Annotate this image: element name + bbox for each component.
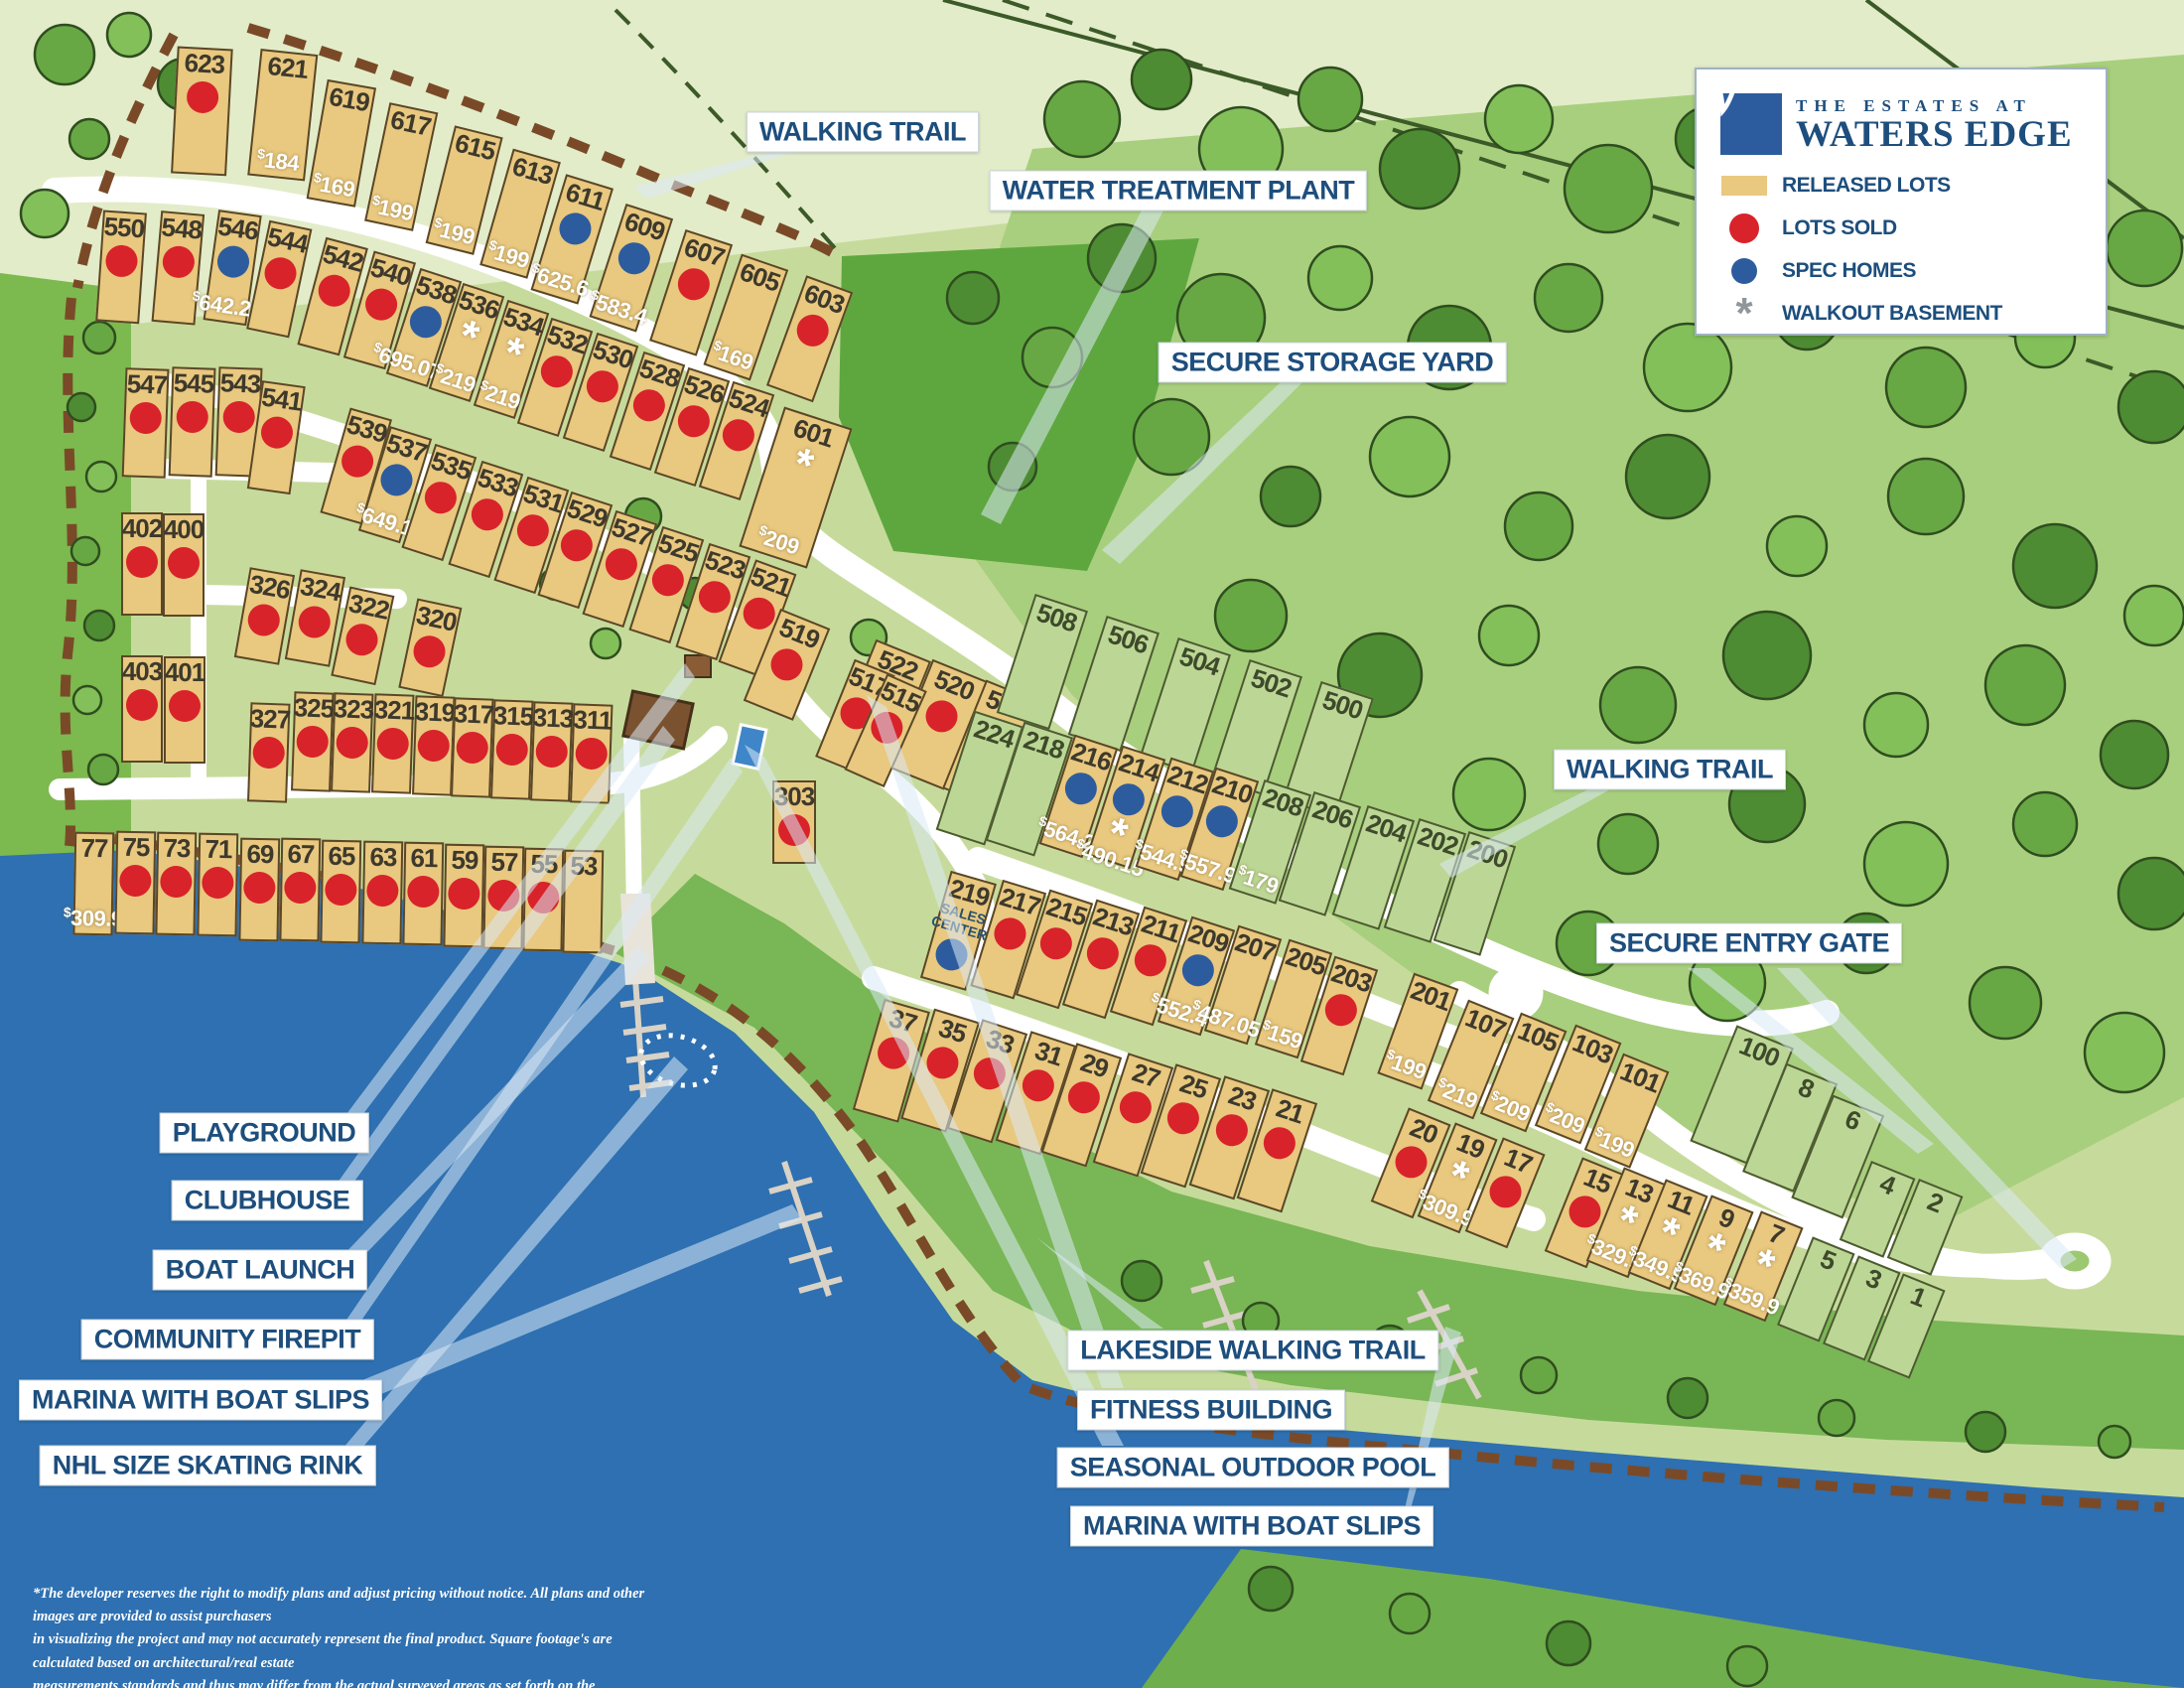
lot-313[interactable]: 313 — [530, 701, 573, 801]
sold-dot — [162, 245, 197, 280]
lot-number: 523 — [702, 546, 748, 583]
walkout-asterisk-icon: * — [1735, 301, 1752, 327]
sold-dot — [376, 727, 409, 760]
sold-dot — [1083, 933, 1123, 973]
lot-number: 23 — [1226, 1081, 1260, 1114]
lot-number: 21 — [1274, 1094, 1307, 1127]
sold-dot — [168, 547, 200, 579]
sold-dot — [259, 415, 295, 451]
waters-edge-logo-icon — [1720, 93, 1782, 155]
sold-dot — [315, 271, 353, 310]
lot-number: 538 — [413, 271, 459, 308]
sold-dot — [169, 690, 201, 722]
lot-number: 25 — [1177, 1069, 1211, 1102]
lot-number: 532 — [544, 321, 590, 357]
lot-73[interactable]: 73 — [155, 832, 197, 936]
lot-price: $209 — [1485, 1086, 1535, 1127]
sold-dot — [970, 1054, 1010, 1093]
lot-number: 621 — [266, 53, 309, 82]
callout-clubhouse: CLUBHOUSE — [172, 1181, 363, 1221]
lot-number: 530 — [590, 336, 635, 372]
lot-price: $159 — [1258, 1016, 1306, 1055]
lot-number: 521 — [748, 563, 794, 601]
lot-number: 525 — [655, 529, 701, 566]
spec-dot — [215, 244, 251, 280]
lot-619[interactable]: 619$169 — [307, 79, 376, 208]
lot-price: $625.6 — [527, 259, 592, 303]
sold-dot — [922, 1043, 962, 1082]
lot-number: 313 — [532, 704, 573, 731]
sold-dot — [874, 1034, 913, 1073]
sold-dot — [1163, 1098, 1203, 1138]
lot-number: 519 — [776, 614, 823, 652]
spec-dot — [406, 302, 446, 342]
lot-number: 324 — [298, 573, 341, 606]
lot-number: 303 — [774, 783, 814, 809]
lot-69[interactable]: 69 — [238, 838, 280, 942]
sold-dot — [527, 882, 560, 914]
legend-label: WALKOUT BASEMENT — [1782, 302, 2002, 326]
lot-number: 609 — [621, 208, 667, 244]
released-lot-swatch — [1721, 176, 1767, 196]
lot-number: 207 — [1232, 928, 1278, 965]
lot-number: 69 — [246, 841, 273, 867]
lot-321[interactable]: 321 — [371, 693, 414, 793]
sold-dot — [407, 876, 440, 909]
lot-price: $169 — [311, 169, 357, 203]
lot-number: 77 — [80, 835, 107, 861]
lot-price: $219 — [476, 376, 524, 415]
lot-number: 200 — [1464, 835, 1510, 872]
site-plan-map: 623621$184619$169617$199615$199613$19961… — [0, 0, 2184, 1688]
lot-number: 57 — [490, 849, 517, 875]
lot-317[interactable]: 317 — [451, 697, 493, 797]
lot-67[interactable]: 67 — [279, 838, 321, 942]
lot-303[interactable]: 303 — [772, 780, 816, 864]
sold-dot — [222, 400, 255, 433]
lot-number: 520 — [931, 665, 978, 704]
lot-number: 107 — [1462, 1004, 1509, 1043]
sold-dot — [1321, 990, 1361, 1030]
lot-number: 105 — [1515, 1017, 1562, 1055]
brand-line1: THE ESTATES AT — [1796, 96, 2073, 116]
legend-item-2: SPEC HOMES — [1720, 256, 2106, 286]
lot-550[interactable]: 550 — [95, 210, 147, 324]
lot-number: 61 — [410, 845, 437, 871]
lot-price: $199 — [430, 213, 478, 250]
spec-dot — [932, 935, 972, 975]
lot-number: 2 — [1924, 1188, 1946, 1216]
lot-number: 617 — [388, 106, 433, 140]
sold-dot — [284, 872, 317, 905]
callout-seasonal-outdoor-pool: SEASONAL OUTDOOR POOL — [1057, 1448, 1449, 1488]
walkout-asterisk-icon: * — [457, 322, 481, 352]
sold-dot — [421, 478, 461, 517]
lot-506[interactable]: 506 — [1068, 616, 1160, 752]
sold-dot — [202, 867, 234, 900]
lot-number: 613 — [509, 153, 555, 189]
lot-number: 320 — [414, 602, 459, 635]
sold-dot — [336, 726, 368, 759]
walkout-asterisk-icon: * — [1656, 1218, 1682, 1248]
lot-number: 529 — [564, 494, 610, 531]
callout-fitness-building: FITNESS BUILDING — [1077, 1390, 1345, 1431]
sold-dot — [417, 729, 450, 762]
lot-617[interactable]: 617$199 — [364, 102, 438, 231]
legend-item-0: RELEASED LOTS — [1720, 171, 2106, 201]
sold-dot — [262, 254, 300, 292]
lot-number: 539 — [343, 411, 389, 447]
sold-dot — [296, 604, 333, 640]
callout-secure-entry-gate: SECURE ENTRY GATE — [1596, 923, 1902, 964]
sold-dot — [456, 731, 488, 764]
sold-dot — [719, 415, 758, 455]
lot-number: 401 — [165, 659, 205, 685]
sold-dot — [557, 525, 597, 565]
lot-number: 623 — [184, 50, 225, 77]
lot-number: 508 — [1033, 599, 1079, 635]
lot-402[interactable]: 402 — [121, 512, 163, 616]
legend-label: SPEC HOMES — [1782, 259, 1916, 283]
sold-dot — [674, 264, 714, 304]
sold-dot — [343, 621, 381, 658]
lot-price: $184 — [255, 145, 300, 177]
sold-dot — [487, 880, 520, 913]
lot-number: 542 — [321, 240, 366, 276]
lot-401[interactable]: 401 — [164, 656, 205, 764]
sold-dot — [1131, 940, 1170, 980]
sold-dot — [119, 865, 152, 898]
sold-dot — [583, 366, 622, 406]
lot-price: $199 — [369, 192, 416, 227]
brand-row: THE ESTATES AT WATERS EDGE — [1720, 93, 2106, 155]
lot-number: 101 — [1617, 1057, 1664, 1096]
lot-55[interactable]: 55 — [522, 848, 564, 952]
lot-number: 103 — [1570, 1029, 1616, 1067]
lot-323[interactable]: 323 — [331, 692, 373, 792]
sold-dot — [1116, 1087, 1156, 1127]
lot-403[interactable]: 403 — [121, 655, 163, 763]
lot-number: 53 — [570, 853, 597, 879]
sold-dot — [468, 494, 507, 534]
sold-dot — [648, 560, 688, 600]
callout-nhl-size-skating-rink: NHL SIZE SKATING RINK — [40, 1446, 376, 1486]
sold-dot — [366, 875, 399, 908]
lot-number: 524 — [726, 384, 771, 421]
lot-315[interactable]: 315 — [490, 699, 533, 799]
lot-number: 326 — [247, 571, 291, 604]
lot-price: $583.4 — [586, 286, 650, 330]
lot-number: 311 — [573, 706, 613, 733]
callout-marina-with-boat-slips-1: MARINA WITH BOAT SLIPS — [19, 1380, 382, 1421]
lot-price: $179 — [1233, 861, 1282, 900]
lot-545[interactable]: 545 — [169, 366, 216, 477]
callout-secure-storage-yard: SECURE STORAGE YARD — [1159, 343, 1507, 383]
lot-number: 215 — [1043, 893, 1089, 929]
lot-number: 619 — [327, 83, 370, 116]
lot-75[interactable]: 75 — [114, 831, 156, 935]
lot-number: 59 — [451, 847, 478, 873]
sold-dot — [252, 736, 285, 769]
lot-number: 73 — [163, 835, 190, 861]
spec-dot — [376, 460, 416, 499]
lot-number: 17 — [1501, 1144, 1536, 1178]
walkout-asterisk-icon: * — [791, 450, 816, 480]
lot-number: 611 — [563, 179, 608, 214]
lot-number: 607 — [681, 233, 727, 270]
sold-dot — [1260, 1123, 1299, 1163]
sold-dot — [1036, 923, 1076, 963]
sold-dot — [186, 80, 219, 114]
disclaimer-line: measurements standards and thus may diff… — [33, 1675, 648, 1688]
lot-number: 20 — [1407, 1114, 1441, 1148]
lot-number: 400 — [164, 516, 204, 542]
lot-number: 531 — [520, 480, 566, 516]
spec-dot — [1202, 801, 1242, 841]
walkout-asterisk-icon: * — [501, 339, 526, 368]
lot-number: 3 — [1862, 1264, 1884, 1293]
lot-504[interactable]: 504 — [1140, 637, 1231, 774]
lot-price: $199 — [484, 236, 532, 274]
lot-number: 504 — [1176, 642, 1222, 679]
legend-items: RELEASED LOTSLOTS SOLDSPEC HOMES*WALKOUT… — [1697, 171, 2106, 329]
sold-dot — [361, 285, 401, 325]
sold-dot — [126, 689, 158, 721]
lot-77[interactable]: 77$309.9 — [72, 832, 114, 936]
sold-dot — [990, 914, 1029, 953]
lot-number: 327 — [249, 705, 290, 732]
lot-number: 1 — [1907, 1282, 1929, 1311]
disclaimer-line: in visualizing the project and may not a… — [33, 1628, 648, 1674]
sold-dot — [245, 602, 282, 638]
lot-508[interactable]: 508 — [997, 594, 1088, 730]
lot-number: 615 — [453, 129, 497, 164]
sold-dot — [129, 401, 162, 434]
callout-community-firepit: COMMUNITY FIREPIT — [81, 1320, 374, 1360]
lot-number: 100 — [1736, 1032, 1783, 1070]
lot-number: 29 — [1078, 1049, 1112, 1081]
walkout-asterisk-icon: * — [1702, 1234, 1727, 1264]
lot-price: $169 — [708, 337, 756, 376]
spec-dot — [1158, 791, 1197, 831]
sold-dot — [629, 385, 669, 425]
callout-walking-trail-top: WALKING TRAIL — [747, 112, 979, 153]
lot-price: $219 — [1433, 1073, 1482, 1114]
lot-number: 403 — [122, 658, 162, 684]
spec-dot-icon — [1731, 258, 1757, 284]
lot-number: 65 — [328, 843, 354, 869]
lot-320[interactable]: 320 — [398, 599, 462, 698]
legend-swatch — [1720, 213, 1768, 243]
callout-marina-with-boat-slips-2: MARINA WITH BOAT SLIPS — [1070, 1506, 1433, 1547]
lot-number: 31 — [1032, 1037, 1066, 1069]
lot-number: 211 — [1139, 911, 1183, 947]
sold-dot — [325, 874, 357, 907]
sold-dot — [674, 401, 714, 441]
legend-swatch — [1720, 258, 1768, 284]
lot-number: 27 — [1130, 1058, 1163, 1091]
legend-panel: THE ESTATES AT WATERS EDGE RELEASED LOTS… — [1695, 68, 2108, 336]
brand-line2: WATERS EDGE — [1796, 116, 2073, 153]
lot-number: 535 — [428, 447, 474, 484]
spec-dot — [1178, 950, 1218, 990]
lot-number: 15 — [1580, 1164, 1615, 1197]
lot-65[interactable]: 65 — [320, 840, 361, 944]
legend-label: LOTS SOLD — [1782, 216, 1897, 240]
lot-number: 202 — [1415, 822, 1460, 859]
lot-number: 526 — [681, 370, 727, 407]
legend-item-3: *WALKOUT BASEMENT — [1720, 299, 2106, 329]
lot-number: 544 — [265, 223, 310, 257]
lot-number: 545 — [173, 369, 213, 396]
walkout-asterisk-icon: * — [1445, 1162, 1471, 1192]
callout-boat-launch: BOAT LAUNCH — [153, 1250, 367, 1291]
sold-dot — [1212, 1110, 1252, 1150]
lot-400[interactable]: 400 — [163, 513, 205, 617]
lot-71[interactable]: 71 — [197, 833, 238, 937]
sold-dot — [448, 878, 480, 911]
sold-dot — [160, 866, 193, 899]
callout-walking-trail-right: WALKING TRAIL — [1554, 750, 1786, 790]
lot-number: 323 — [333, 695, 373, 722]
lot-57[interactable]: 57 — [482, 846, 524, 950]
lot-number: 540 — [367, 254, 413, 290]
lot-number: 205 — [1283, 942, 1328, 979]
lot-number: 37 — [887, 1005, 919, 1037]
spec-dot — [614, 238, 654, 278]
lot-number: 212 — [1164, 761, 1210, 797]
lot-number: 71 — [205, 836, 231, 862]
lot-number: 537 — [383, 430, 429, 467]
lot-price: $199 — [1589, 1122, 1639, 1163]
lot-59[interactable]: 59 — [443, 844, 484, 948]
sold-dot — [495, 733, 528, 766]
lot-53[interactable]: 53 — [562, 850, 604, 954]
lot-number: 67 — [287, 841, 314, 867]
sold-dot — [338, 442, 377, 482]
lot-price: $209 — [1540, 1098, 1589, 1139]
lot-number: 527 — [609, 513, 654, 550]
lot-number: 322 — [346, 590, 391, 624]
lot-price: $219 — [431, 359, 479, 398]
callout-water-treatment-plant: WATER TREATMENT PLANT — [990, 171, 1367, 211]
brand-text: THE ESTATES AT WATERS EDGE — [1796, 96, 2073, 153]
lot-number: 546 — [216, 212, 260, 243]
lot-325[interactable]: 325 — [291, 691, 334, 791]
lot-number: 528 — [636, 354, 682, 391]
lot-price: $209 — [754, 521, 803, 560]
lot-327[interactable]: 327 — [247, 702, 290, 802]
lot-number: 75 — [122, 834, 149, 860]
lot-number: 203 — [1328, 959, 1374, 996]
lot-number: 5 — [1817, 1245, 1839, 1274]
disclaimer-line: *The developer reserves the right to mod… — [33, 1583, 648, 1628]
lot-number: 217 — [997, 884, 1042, 920]
lot-61[interactable]: 61 — [402, 842, 444, 946]
sold-dot — [1019, 1065, 1058, 1105]
lot-number: 502 — [1248, 664, 1294, 701]
lot-number: 548 — [161, 213, 204, 242]
sold-dot — [296, 725, 329, 758]
spec-dot — [555, 209, 595, 248]
sold-dot — [537, 352, 577, 391]
lot-number: 209 — [1185, 919, 1231, 956]
lot-547[interactable]: 547 — [122, 367, 170, 478]
lot-number: 6 — [1842, 1105, 1863, 1134]
lot-number: 603 — [801, 280, 848, 318]
lot-number: 213 — [1090, 903, 1136, 939]
lot-number: 8 — [1795, 1073, 1817, 1102]
lot-number: 500 — [1319, 686, 1365, 723]
sold-dot — [104, 244, 138, 278]
walkout-asterisk-icon: * — [1751, 1250, 1777, 1280]
lot-number: 204 — [1363, 809, 1409, 846]
sold-dot-icon — [1729, 213, 1759, 243]
lot-number: 319 — [414, 698, 455, 725]
sold-dot — [535, 735, 568, 768]
lot-63[interactable]: 63 — [361, 841, 403, 945]
sold-dot — [411, 633, 449, 670]
lot-number: 55 — [530, 851, 557, 877]
legend-item-1: LOTS SOLD — [1720, 213, 2106, 243]
disclaimer-text: *The developer reserves the right to mod… — [33, 1583, 648, 1688]
walkout-asterisk-icon: * — [1614, 1206, 1640, 1236]
lot-319[interactable]: 319 — [412, 695, 455, 795]
sold-dot — [778, 814, 810, 846]
lot-number: 550 — [103, 213, 145, 242]
sold-dot — [243, 872, 276, 905]
lot-price: $199 — [1381, 1046, 1430, 1085]
lot-number: 317 — [453, 700, 493, 727]
lot-number: 547 — [126, 370, 167, 397]
lot-number: 605 — [737, 258, 783, 296]
spec-dot — [1061, 769, 1101, 808]
legend-swatch — [1720, 176, 1768, 196]
lot-number: 4 — [1876, 1170, 1898, 1198]
callout-playground: PLAYGROUND — [160, 1113, 369, 1154]
legend-swatch: * — [1720, 301, 1768, 327]
lot-number: 533 — [475, 464, 520, 500]
lot-number: 325 — [293, 694, 334, 721]
lot-number: 35 — [936, 1015, 969, 1048]
sold-dot — [602, 544, 641, 584]
lot-number: 402 — [122, 515, 162, 541]
lot-number: 206 — [1309, 795, 1355, 832]
lot-623[interactable]: 623 — [171, 47, 233, 177]
lot-number: 543 — [219, 369, 260, 396]
lot-number: 321 — [373, 696, 414, 723]
lot-number: 506 — [1105, 621, 1151, 657]
lot-number: 201 — [1408, 977, 1454, 1015]
lot-number: 33 — [984, 1025, 1018, 1057]
legend-label: RELEASED LOTS — [1782, 174, 1951, 198]
sold-dot — [792, 310, 833, 351]
lot-number: 218 — [1021, 726, 1066, 763]
lot-621[interactable]: 621$184 — [247, 49, 318, 181]
sold-dot — [126, 546, 158, 578]
sold-dot — [513, 510, 553, 550]
lot-311[interactable]: 311 — [570, 703, 613, 803]
sold-dot — [695, 577, 735, 617]
lot-number: 315 — [492, 702, 533, 729]
lot-number: 63 — [369, 844, 396, 870]
lot-number: 541 — [260, 383, 304, 414]
sold-dot — [575, 737, 608, 770]
sold-dot — [1064, 1077, 1104, 1117]
callout-lakeside-walking-trail: LAKESIDE WALKING TRAIL — [1067, 1331, 1438, 1371]
sold-dot — [176, 400, 208, 433]
